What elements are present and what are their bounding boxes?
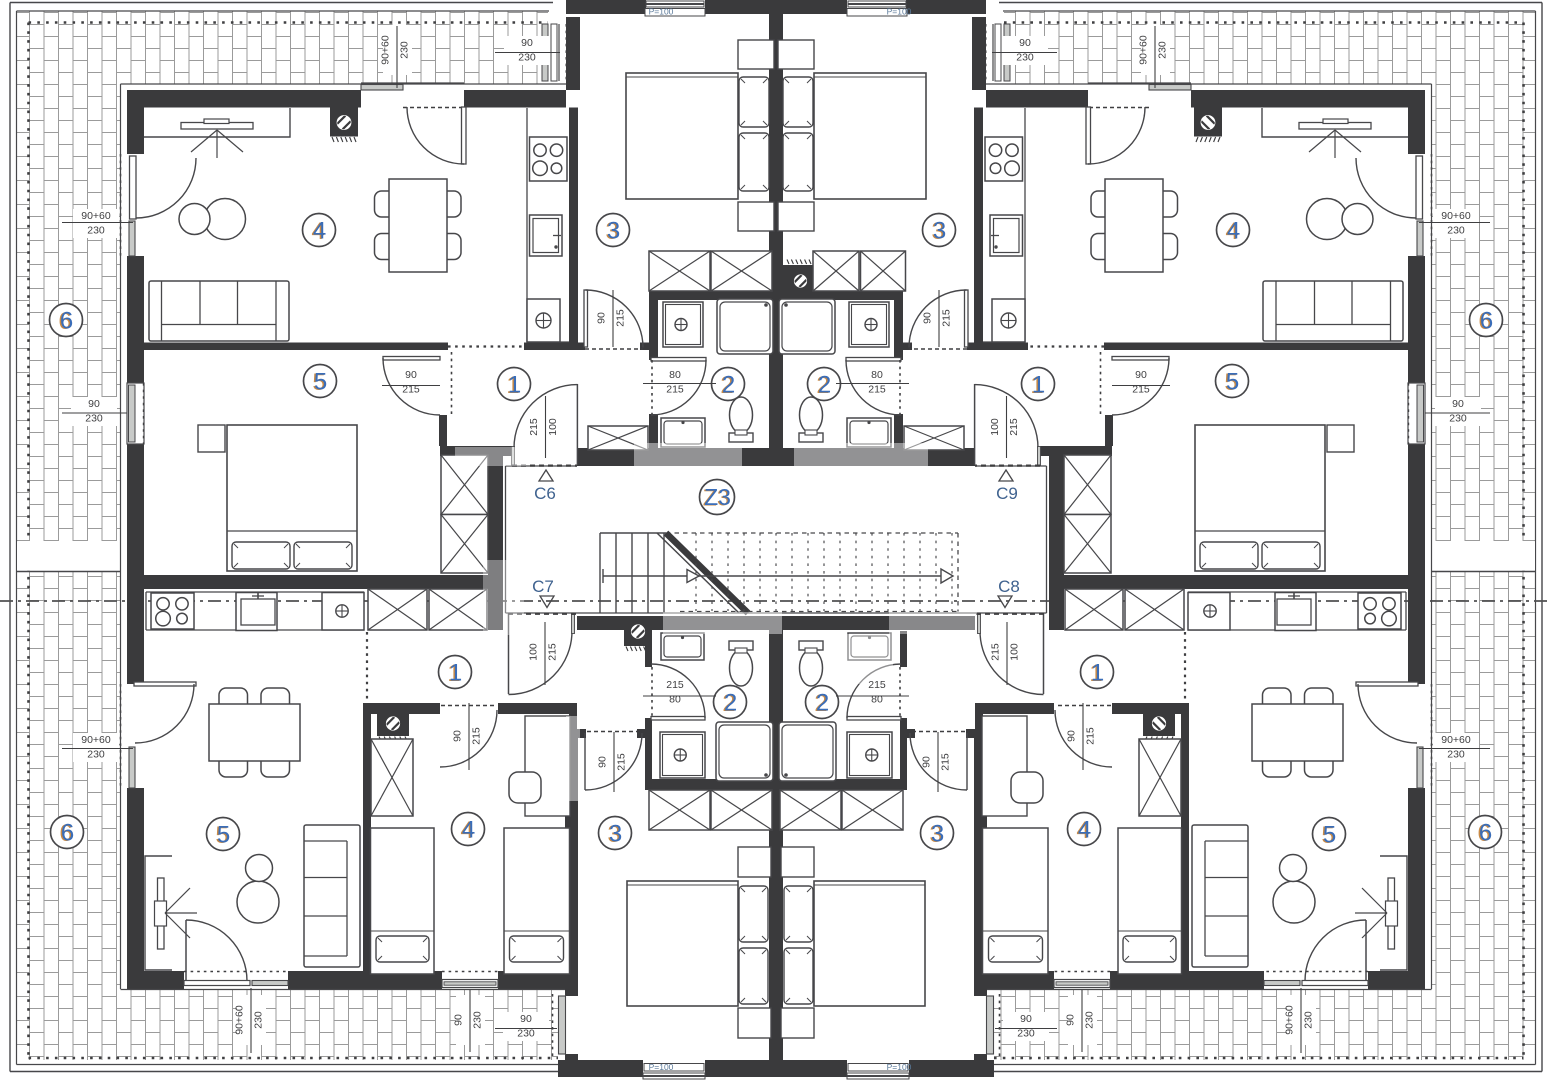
svg-text:90: 90 — [921, 756, 933, 768]
svg-text:230: 230 — [517, 1028, 535, 1040]
svg-text:90+60: 90+60 — [1441, 734, 1471, 746]
svg-text:230: 230 — [85, 413, 103, 425]
svg-text:215: 215 — [547, 643, 559, 661]
svg-text:230: 230 — [1016, 52, 1034, 64]
svg-text:1: 1 — [1032, 371, 1045, 398]
svg-text:2: 2 — [816, 689, 829, 716]
svg-text:P=100: P=100 — [649, 7, 674, 17]
svg-text:90: 90 — [520, 1013, 532, 1025]
svg-text:230: 230 — [1157, 41, 1169, 59]
svg-text:230: 230 — [472, 1011, 484, 1029]
svg-text:215: 215 — [940, 753, 952, 771]
svg-text:90: 90 — [521, 37, 533, 49]
svg-text:90+60: 90+60 — [1284, 1005, 1296, 1035]
svg-text:6: 6 — [61, 819, 74, 846]
svg-text:C8: C8 — [998, 577, 1020, 596]
svg-text:230: 230 — [87, 225, 105, 237]
svg-text:90: 90 — [597, 756, 609, 768]
svg-text:90: 90 — [922, 312, 934, 324]
svg-text:90: 90 — [1019, 37, 1031, 49]
svg-text:6: 6 — [1480, 307, 1493, 334]
svg-text:215: 215 — [1085, 727, 1097, 745]
svg-text:215: 215 — [1132, 384, 1150, 396]
svg-text:215: 215 — [868, 384, 886, 396]
svg-text:1: 1 — [1091, 659, 1104, 686]
svg-text:3: 3 — [607, 217, 620, 244]
svg-text:P=100: P=100 — [649, 1062, 674, 1072]
svg-text:90+60: 90+60 — [234, 1005, 246, 1035]
svg-text:90: 90 — [405, 369, 417, 381]
svg-text:230: 230 — [518, 52, 536, 64]
svg-text:3: 3 — [931, 820, 944, 847]
svg-text:230: 230 — [1303, 1011, 1315, 1029]
svg-text:6: 6 — [1479, 819, 1492, 846]
svg-text:5: 5 — [314, 368, 327, 395]
svg-text:C9: C9 — [996, 484, 1018, 503]
svg-text:5: 5 — [1226, 368, 1239, 395]
svg-text:P=100: P=100 — [887, 1062, 912, 1072]
svg-text:100: 100 — [547, 418, 559, 436]
svg-text:230: 230 — [253, 1011, 265, 1029]
svg-text:215: 215 — [666, 679, 684, 691]
svg-text:90+60: 90+60 — [1138, 35, 1150, 65]
svg-text:90: 90 — [88, 398, 100, 410]
svg-text:2: 2 — [722, 371, 735, 398]
svg-text:215: 215 — [941, 309, 953, 327]
svg-text:80: 80 — [669, 694, 681, 706]
svg-text:90: 90 — [453, 1014, 465, 1026]
svg-text:100: 100 — [528, 643, 540, 661]
svg-text:90+60: 90+60 — [81, 734, 111, 746]
svg-text:100: 100 — [1009, 643, 1021, 661]
svg-text:90: 90 — [452, 730, 464, 742]
svg-text:2: 2 — [724, 689, 737, 716]
svg-text:215: 215 — [528, 418, 540, 436]
svg-text:230: 230 — [1447, 749, 1465, 761]
svg-text:3: 3 — [933, 217, 946, 244]
svg-text:215: 215 — [666, 384, 684, 396]
svg-text:215: 215 — [1008, 418, 1020, 436]
svg-text:215: 215 — [402, 384, 420, 396]
svg-text:P=100: P=100 — [887, 7, 912, 17]
svg-text:C6: C6 — [534, 484, 556, 503]
svg-text:3: 3 — [609, 820, 622, 847]
svg-text:215: 215 — [868, 679, 886, 691]
svg-text:90: 90 — [1065, 1014, 1077, 1026]
svg-text:Z3: Z3 — [704, 484, 731, 510]
svg-text:90: 90 — [1066, 730, 1078, 742]
svg-text:230: 230 — [1447, 225, 1465, 237]
svg-text:1: 1 — [508, 371, 521, 398]
svg-text:6: 6 — [60, 307, 73, 334]
svg-text:230: 230 — [399, 41, 411, 59]
svg-text:5: 5 — [1323, 821, 1336, 848]
svg-text:215: 215 — [615, 309, 627, 327]
svg-text:4: 4 — [313, 217, 326, 244]
svg-text:4: 4 — [462, 816, 475, 843]
svg-text:90: 90 — [1135, 369, 1147, 381]
svg-text:1: 1 — [449, 659, 462, 686]
svg-text:90: 90 — [1452, 398, 1464, 410]
svg-text:80: 80 — [871, 694, 883, 706]
svg-text:90+60: 90+60 — [380, 35, 392, 65]
svg-text:90: 90 — [596, 312, 608, 324]
svg-text:4: 4 — [1227, 217, 1240, 244]
svg-text:80: 80 — [669, 369, 681, 381]
svg-text:215: 215 — [990, 643, 1002, 661]
svg-text:2: 2 — [818, 371, 831, 398]
svg-text:215: 215 — [616, 753, 628, 771]
svg-text:80: 80 — [871, 369, 883, 381]
svg-text:230: 230 — [1449, 413, 1467, 425]
svg-text:100: 100 — [989, 418, 1001, 436]
svg-text:C7: C7 — [532, 577, 554, 596]
svg-text:5: 5 — [217, 821, 230, 848]
svg-text:90: 90 — [1020, 1013, 1032, 1025]
svg-text:230: 230 — [87, 749, 105, 761]
svg-text:90+60: 90+60 — [1441, 210, 1471, 222]
svg-text:90+60: 90+60 — [81, 210, 111, 222]
svg-text:215: 215 — [471, 727, 483, 745]
svg-text:230: 230 — [1084, 1011, 1096, 1029]
svg-text:230: 230 — [1017, 1028, 1035, 1040]
svg-text:4: 4 — [1078, 816, 1091, 843]
